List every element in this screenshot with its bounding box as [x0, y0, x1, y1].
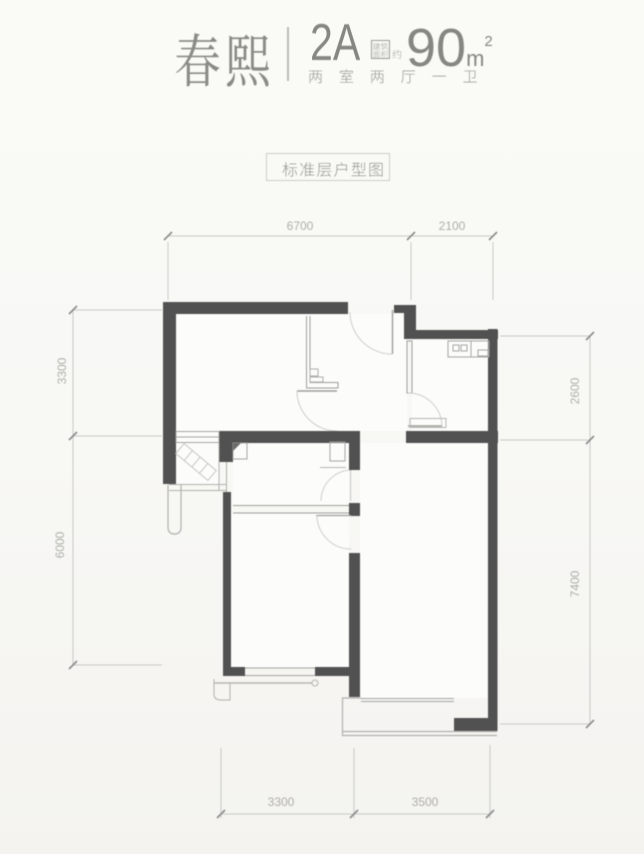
svg-text:3300: 3300 [268, 795, 295, 809]
svg-text:3500: 3500 [412, 795, 439, 809]
svg-text:2600: 2600 [568, 377, 582, 404]
svg-text:2100: 2100 [439, 219, 466, 233]
svg-text:6000: 6000 [53, 531, 67, 558]
svg-text:3300: 3300 [55, 357, 69, 384]
svg-text:7400: 7400 [568, 570, 582, 597]
svg-text:6700: 6700 [287, 219, 314, 233]
